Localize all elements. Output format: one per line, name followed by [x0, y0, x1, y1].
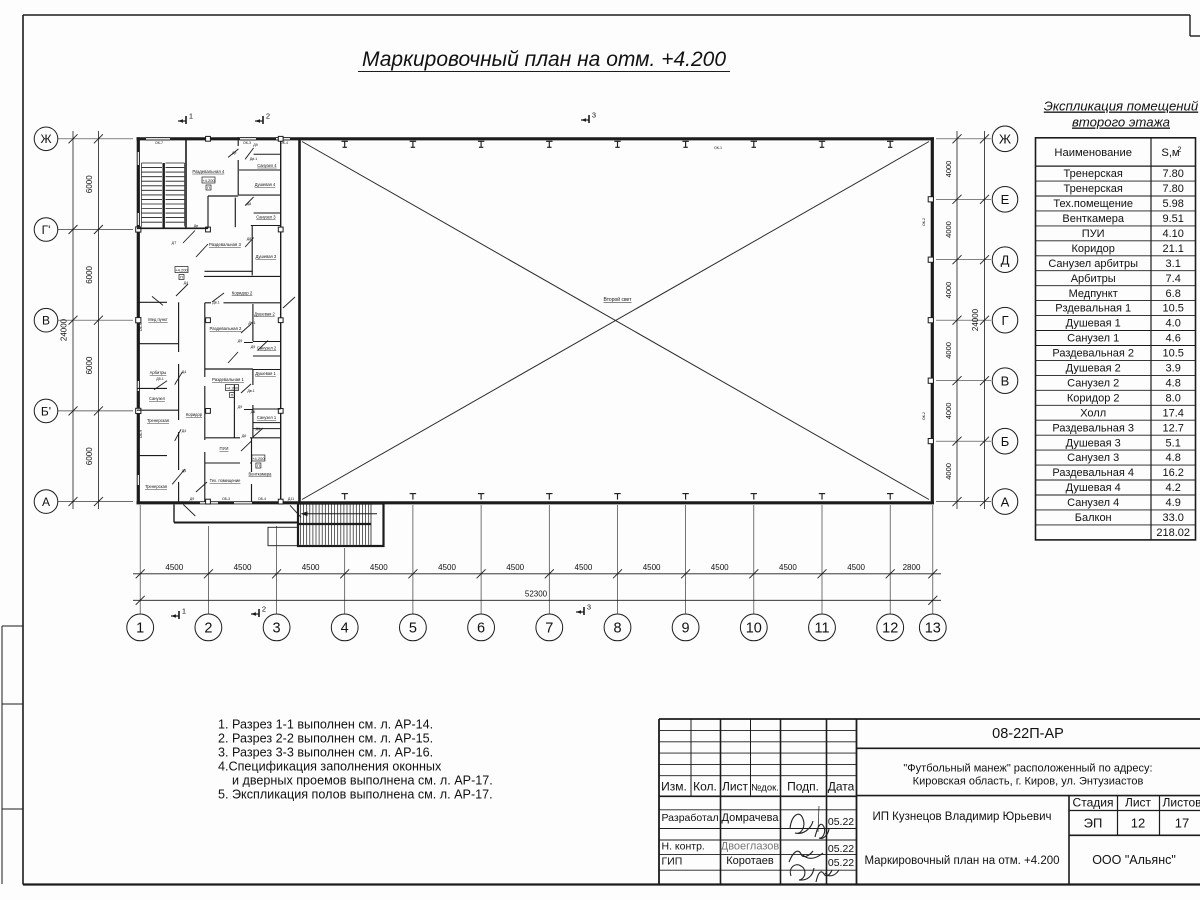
- svg-text:П: П: [180, 276, 183, 280]
- svg-text:Д6: Д6: [242, 434, 246, 438]
- svg-text:Б: Б: [1001, 434, 1010, 449]
- svg-text:Медпункт: Медпункт: [1069, 288, 1118, 300]
- svg-text:Ж: Ж: [999, 132, 1011, 147]
- svg-text:6000: 6000: [85, 175, 94, 193]
- svg-text:ОК-4: ОК-4: [280, 141, 288, 145]
- svg-text:Дв.1: Дв.1: [247, 389, 254, 393]
- svg-text:16.2: 16.2: [1162, 467, 1183, 479]
- svg-text:ОБ-9: ОБ-9: [139, 430, 143, 438]
- svg-text:Кол.: Кол.: [693, 780, 717, 794]
- svg-text:2: 2: [204, 621, 212, 637]
- svg-text:Д9: Д9: [238, 405, 242, 409]
- svg-text:Балкон: Балкон: [1075, 512, 1112, 524]
- svg-text:ИП Кузнецов Владимир Юрьевич: ИП Кузнецов Владимир Юрьевич: [872, 811, 1051, 823]
- svg-text:24000: 24000: [971, 308, 980, 331]
- svg-text:Раздевальная 4: Раздевальная 4: [192, 169, 224, 174]
- svg-text:Стадия: Стадия: [1073, 796, 1114, 810]
- svg-text:4000: 4000: [944, 221, 953, 238]
- svg-text:2: 2: [1178, 147, 1182, 154]
- svg-text:Второй свет: Второй свет: [604, 296, 633, 303]
- svg-text:4: 4: [341, 621, 349, 637]
- svg-text:Раздевальная 3: Раздевальная 3: [1052, 422, 1134, 434]
- svg-text:Д4: Д4: [182, 429, 186, 433]
- svg-text:Д9: Д9: [238, 339, 242, 343]
- svg-text:В: В: [42, 314, 50, 328]
- svg-text:Тех. помещение: Тех. помещение: [210, 478, 242, 483]
- svg-text:5. Экспликация полов выполнена: 5. Экспликация полов выполнена см. л. АР…: [218, 788, 493, 802]
- svg-text:Д8: Д8: [247, 237, 251, 241]
- svg-text:ОБ-3: ОБ-3: [222, 497, 230, 501]
- svg-text:ОК-7: ОК-7: [155, 141, 163, 145]
- svg-text:Б': Б': [41, 404, 51, 418]
- svg-text:Лист: Лист: [1125, 796, 1152, 810]
- svg-text:4.10: 4.10: [1162, 228, 1183, 240]
- svg-text:Душевая 3: Душевая 3: [256, 254, 277, 259]
- svg-text:Дв.1: Дв.1: [212, 301, 219, 305]
- svg-text:Подп.: Подп.: [787, 780, 819, 794]
- svg-text:5.1: 5.1: [1166, 437, 1181, 449]
- svg-text:Раздевальная 1: Раздевальная 1: [212, 377, 244, 382]
- svg-text:Санузел 1: Санузел 1: [1067, 333, 1119, 345]
- svg-text:3: 3: [587, 603, 591, 612]
- svg-text:Лист: Лист: [722, 780, 749, 794]
- svg-text:Дв.1: Дв.1: [250, 157, 257, 161]
- svg-text:Ж: Ж: [40, 132, 51, 146]
- svg-text:Санузел: Санузел: [149, 396, 166, 401]
- svg-text:Санузел 3: Санузел 3: [1067, 452, 1119, 464]
- svg-text:6000: 6000: [85, 447, 94, 465]
- svg-text:и дверных проемов выполнена см: и дверных проемов выполнена см. л. АР-17…: [218, 774, 493, 788]
- svg-text:Маркировочный план на отм. +4.: Маркировочный план на отм. +4.200: [362, 48, 726, 71]
- svg-text:4.6: 4.6: [1166, 333, 1181, 345]
- svg-text:Дв.1: Дв.1: [248, 321, 255, 325]
- svg-text:4500: 4500: [165, 563, 183, 572]
- svg-text:Тренерская: Тренерская: [147, 418, 169, 423]
- svg-text:4500: 4500: [234, 563, 252, 572]
- svg-text:7.4: 7.4: [1166, 273, 1181, 285]
- svg-text:"Футбольный манеж" расположенн: "Футбольный манеж" расположенный по адре…: [903, 763, 1152, 775]
- svg-text:ДТ: ДТ: [172, 241, 177, 245]
- svg-text:Г: Г: [1001, 313, 1008, 328]
- svg-text:Рздевальная 1: Рздевальная 1: [1055, 303, 1131, 315]
- svg-text:Холл: Холл: [1080, 407, 1106, 419]
- svg-text:6000: 6000: [85, 356, 94, 374]
- svg-text:ПУИ: ПУИ: [1082, 228, 1105, 240]
- svg-text:Домрачева: Домрачева: [722, 812, 780, 824]
- svg-text:Тренерская: Тренерская: [145, 484, 167, 489]
- svg-text:Душевая 4: Душевая 4: [255, 182, 276, 187]
- svg-text:Изм.: Изм.: [661, 780, 687, 794]
- svg-text:Экспликация помещений: Экспликация помещений: [1044, 99, 1199, 114]
- svg-text:05.22: 05.22: [828, 857, 854, 869]
- svg-text:№док.: №док.: [751, 783, 779, 794]
- svg-text:ОК-2: ОК-2: [922, 218, 926, 226]
- svg-text:4500: 4500: [575, 563, 593, 572]
- svg-text:А: А: [1001, 494, 1010, 509]
- svg-text:Кировская область, г. Киров, у: Кировская область, г. Киров, ул. Энтузиа…: [913, 776, 1144, 788]
- svg-text:Тех.помещение: Тех.помещение: [1053, 198, 1133, 210]
- svg-text:4500: 4500: [302, 563, 320, 572]
- svg-text:+4.200: +4.200: [202, 178, 215, 183]
- svg-text:1. Разрез 1-1 выполнен см. л.: 1. Разрез 1-1 выполнен см. л. АР-14.: [218, 718, 433, 732]
- svg-text:4500: 4500: [711, 563, 729, 572]
- svg-text:Санузел 4: Санузел 4: [257, 163, 277, 168]
- svg-text:Арбитры: Арбитры: [1071, 273, 1116, 285]
- svg-text:5: 5: [409, 621, 417, 637]
- svg-text:5.98: 5.98: [1162, 198, 1183, 210]
- svg-text:Венткамера: Венткамера: [249, 472, 273, 477]
- svg-text:4.9: 4.9: [1166, 497, 1181, 509]
- svg-text:+4.200: +4.200: [175, 267, 188, 272]
- svg-text:10: 10: [746, 621, 762, 637]
- svg-text:4000: 4000: [944, 161, 953, 178]
- svg-text:Душевая 4: Душевая 4: [1066, 482, 1121, 494]
- svg-text:Д: Д: [1001, 253, 1010, 268]
- svg-text:+4.200: +4.200: [252, 456, 265, 461]
- svg-text:4500: 4500: [643, 563, 661, 572]
- svg-text:4000: 4000: [944, 403, 953, 420]
- svg-text:Листов: Листов: [1163, 796, 1200, 810]
- svg-text:52300: 52300: [525, 590, 548, 599]
- svg-text:4.Спецификация заполнения окон: 4.Спецификация заполнения оконных: [218, 760, 442, 774]
- svg-text:Душевая 2: Душевая 2: [1066, 363, 1121, 375]
- svg-text:Душевая 1: Душевая 1: [1066, 318, 1121, 330]
- svg-text:Маркировочный план на отм. +4.: Маркировочный план на отм. +4.200: [864, 855, 1059, 867]
- svg-text:Душевая 2: Душевая 2: [254, 311, 275, 316]
- svg-text:Д9: Д9: [251, 345, 255, 349]
- svg-text:ООО "Альянс": ООО "Альянс": [1092, 853, 1176, 867]
- svg-text:3.1: 3.1: [1166, 258, 1181, 270]
- svg-text:8.0: 8.0: [1166, 392, 1181, 404]
- svg-text:Коридор: Коридор: [186, 412, 203, 417]
- svg-text:Венткамера: Венткамера: [1062, 213, 1125, 225]
- svg-text:Г': Г': [42, 223, 51, 237]
- svg-text:2: 2: [266, 112, 270, 121]
- svg-text:Коридор 2: Коридор 2: [1067, 392, 1120, 404]
- svg-text:Д9: Д9: [253, 143, 257, 147]
- svg-text:1: 1: [136, 621, 144, 637]
- svg-text:Мед пункт: Мед пункт: [148, 317, 168, 322]
- svg-text:Д6: Д6: [251, 410, 255, 414]
- svg-text:4.8: 4.8: [1166, 378, 1181, 390]
- svg-text:12.7: 12.7: [1162, 422, 1183, 434]
- svg-text:3: 3: [273, 621, 281, 637]
- svg-text:П: П: [257, 464, 260, 468]
- svg-text:4500: 4500: [506, 563, 524, 572]
- svg-text:6: 6: [477, 621, 485, 637]
- svg-text:Коридор: Коридор: [1071, 243, 1114, 255]
- svg-text:ОБ-6: ОБ-6: [139, 323, 143, 331]
- svg-text:+4.200: +4.200: [226, 385, 239, 390]
- svg-text:Коридор 2: Коридор 2: [232, 290, 253, 295]
- svg-text:1: 1: [189, 112, 193, 121]
- svg-text:Дв: Дв: [194, 224, 198, 228]
- svg-text:Д9: Д9: [232, 151, 236, 155]
- svg-text:7.80: 7.80: [1162, 183, 1183, 195]
- svg-text:А: А: [42, 495, 50, 509]
- svg-text:7: 7: [545, 621, 553, 637]
- svg-text:ЭП: ЭП: [1084, 816, 1103, 831]
- svg-text:ОК-3: ОК-3: [243, 141, 251, 145]
- svg-text:Дата: Дата: [828, 780, 855, 794]
- svg-text:Д6: Д6: [256, 427, 260, 431]
- svg-text:Санузел 2: Санузел 2: [1067, 378, 1119, 390]
- svg-text:4500: 4500: [370, 563, 388, 572]
- svg-text:08-22П-АР: 08-22П-АР: [992, 726, 1064, 742]
- svg-text:2: 2: [262, 605, 266, 614]
- svg-text:ОК-1: ОК-1: [714, 146, 722, 150]
- svg-text:4.2: 4.2: [1166, 482, 1181, 494]
- svg-text:8: 8: [613, 621, 621, 637]
- svg-text:Д4: Д4: [182, 469, 186, 473]
- svg-text:Двоеглазов: Двоеглазов: [721, 841, 780, 853]
- svg-text:Раздевальная 2: Раздевальная 2: [1052, 348, 1134, 360]
- svg-text:12: 12: [1131, 816, 1145, 831]
- svg-text:Коротаев: Коротаев: [726, 855, 774, 867]
- svg-text:4000: 4000: [944, 342, 953, 359]
- svg-text:ОК-2: ОК-2: [922, 412, 926, 420]
- svg-text:12: 12: [882, 621, 898, 637]
- svg-text:4000: 4000: [944, 282, 953, 299]
- svg-text:второго этажа: второго этажа: [1072, 115, 1170, 130]
- svg-text:Д4: Д4: [184, 281, 188, 285]
- svg-text:17: 17: [1175, 816, 1189, 831]
- svg-text:7.80: 7.80: [1162, 168, 1183, 180]
- svg-text:Душевая 3: Душевая 3: [1066, 437, 1121, 449]
- svg-text:Санузел 3: Санузел 3: [256, 214, 276, 219]
- svg-text:Д8: Д8: [247, 202, 251, 206]
- svg-text:В: В: [1001, 374, 1010, 389]
- svg-text:17.4: 17.4: [1162, 407, 1183, 419]
- svg-text:4000: 4000: [944, 463, 953, 480]
- svg-text:Разработал: Разработал: [662, 812, 719, 824]
- svg-text:Д4: Д4: [182, 370, 186, 374]
- svg-text:ГИП: ГИП: [662, 856, 683, 868]
- svg-text:21.1: 21.1: [1162, 243, 1183, 255]
- svg-text:1: 1: [182, 607, 186, 616]
- svg-text:Раздевальная 4: Раздевальная 4: [1052, 467, 1134, 479]
- svg-text:9.51: 9.51: [1162, 213, 1183, 225]
- svg-text:24000: 24000: [60, 318, 69, 341]
- svg-text:Арбитры: Арбитры: [150, 370, 167, 375]
- svg-text:33.0: 33.0: [1162, 512, 1183, 524]
- svg-text:6.8: 6.8: [1166, 288, 1181, 300]
- svg-text:05.22: 05.22: [828, 816, 854, 828]
- svg-text:Санузел 1: Санузел 1: [257, 415, 277, 420]
- svg-text:Наименование: Наименование: [1054, 147, 1132, 159]
- svg-text:Тренерская: Тренерская: [1064, 183, 1123, 195]
- svg-text:4.8: 4.8: [1166, 452, 1181, 464]
- svg-text:3: 3: [592, 111, 596, 120]
- svg-text:13: 13: [925, 621, 941, 637]
- svg-text:Н. контр.: Н. контр.: [662, 841, 705, 853]
- svg-text:4.0: 4.0: [1166, 318, 1181, 330]
- svg-text:4500: 4500: [779, 563, 797, 572]
- svg-text:Д11: Д11: [288, 497, 294, 501]
- svg-text:ПУИ: ПУИ: [220, 446, 229, 451]
- svg-text:Санузел 2: Санузел 2: [257, 345, 277, 350]
- svg-text:Санузел арбитры: Санузел арбитры: [1048, 258, 1138, 270]
- svg-text:П: П: [231, 394, 234, 398]
- svg-text:Е: Е: [1001, 192, 1010, 207]
- svg-text:Санузел 4: Санузел 4: [1067, 497, 1119, 509]
- svg-text:4500: 4500: [847, 563, 865, 572]
- svg-text:218.02: 218.02: [1156, 527, 1190, 539]
- svg-text:2800: 2800: [903, 563, 921, 572]
- svg-text:Д9: Д9: [190, 497, 194, 501]
- svg-text:Д5.1: Д5.1: [156, 377, 163, 381]
- svg-text:3.9: 3.9: [1166, 363, 1181, 375]
- svg-text:П: П: [207, 186, 210, 190]
- svg-text:11: 11: [814, 621, 829, 637]
- svg-text:Душевая 1: Душевая 1: [255, 371, 276, 376]
- svg-text:6000: 6000: [85, 265, 94, 283]
- svg-text:3. Разрез 3-3 выполнен см. л.: 3. Разрез 3-3 выполнен см. л. АР-16.: [218, 746, 433, 760]
- svg-text:4500: 4500: [438, 563, 456, 572]
- svg-text:9: 9: [682, 621, 690, 637]
- svg-text:Тренерская: Тренерская: [1064, 168, 1123, 180]
- svg-text:10.5: 10.5: [1162, 303, 1183, 315]
- svg-text:2. Разрез 2-2 выполнен см. л.: 2. Разрез 2-2 выполнен см. л. АР-15.: [218, 732, 433, 746]
- svg-text:Раздевальная 3: Раздевальная 3: [209, 242, 241, 247]
- svg-text:ОБ-4: ОБ-4: [258, 497, 266, 501]
- svg-text:10.5: 10.5: [1162, 348, 1183, 360]
- svg-text:05.22: 05.22: [828, 843, 854, 855]
- svg-text:Раздевальная 2: Раздевальная 2: [210, 326, 242, 331]
